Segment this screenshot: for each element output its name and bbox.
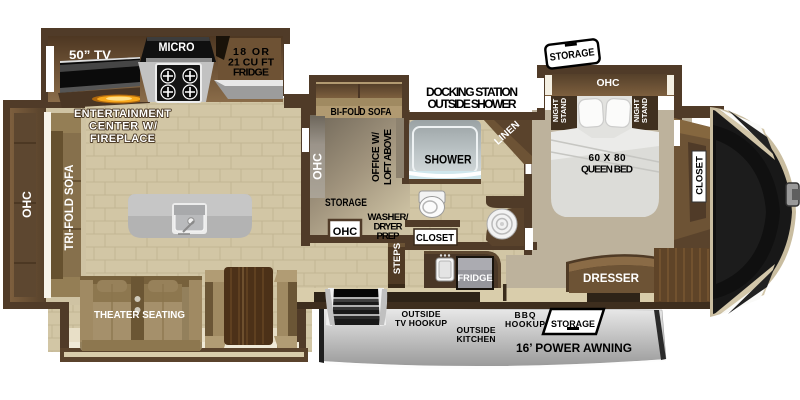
svg-text:LOFT ABOVE: LOFT ABOVE [383,129,394,185]
svg-text:SHOWER: SHOWER [425,153,472,167]
svg-text:CLOSET: CLOSET [695,156,706,195]
svg-text:OUTSIDE SHOWER: OUTSIDE SHOWER [428,97,517,111]
svg-text:OHC: OHC [333,226,358,238]
svg-text:OFFICE W/: OFFICE W/ [371,132,382,182]
svg-text:STEPS: STEPS [392,243,403,274]
svg-text:THEATER SEATING: THEATER SEATING [94,309,185,321]
svg-text:OHC: OHC [20,191,34,218]
svg-text:FRIDGE: FRIDGE [233,67,269,79]
svg-text:BI-FOLD SOFA: BI-FOLD SOFA [331,107,392,118]
svg-text:HOOKUP: HOOKUP [505,319,545,329]
svg-text:TV HOOKUP: TV HOOKUP [395,318,447,328]
svg-text:STORAGE: STORAGE [325,197,367,209]
svg-text:16’ POWER AWNING: 16’ POWER AWNING [516,341,632,355]
svg-text:DRESSER: DRESSER [583,273,640,285]
svg-text:ENTERTAINMENT: ENTERTAINMENT [74,108,171,120]
svg-text:60 X 80: 60 X 80 [589,153,626,164]
svg-text:TRI-FOLD SOFA: TRI-FOLD SOFA [64,165,76,251]
svg-text:QUEEN BED: QUEEN BED [581,165,633,176]
svg-text:50” TV: 50” TV [69,50,111,62]
svg-text:STAND: STAND [640,97,649,123]
svg-text:STAND: STAND [559,97,568,123]
svg-text:MICRO: MICRO [159,42,195,54]
svg-text:CLOSET: CLOSET [416,232,455,244]
svg-text:OHC: OHC [597,78,620,89]
svg-text:KITCHEN: KITCHEN [457,334,496,344]
svg-text:FIREPLACE: FIREPLACE [90,133,155,145]
svg-text:STORAGE: STORAGE [551,319,595,330]
svg-text:PREP: PREP [377,231,401,242]
svg-text:OHC: OHC [311,153,325,180]
svg-text:FRIDGE: FRIDGE [458,273,493,284]
svg-text:CENTER W/: CENTER W/ [89,121,157,133]
